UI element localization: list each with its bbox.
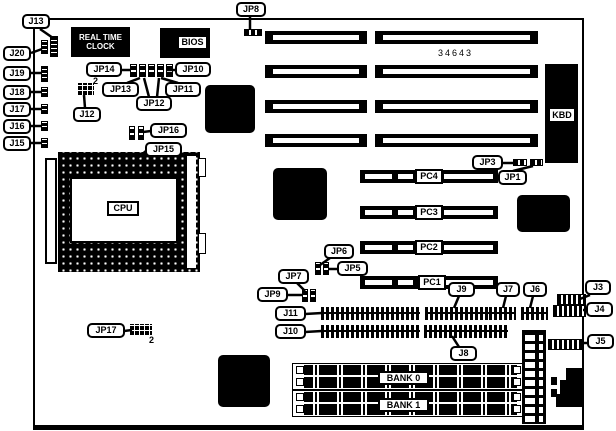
pc3-label: PC3	[415, 205, 443, 220]
jp15-label: JP15	[145, 142, 182, 157]
part-number: 34643	[438, 48, 473, 58]
j3-label: J3	[585, 280, 611, 295]
j20-label: J20	[3, 46, 31, 61]
cpu-socket-tab-top	[198, 158, 206, 177]
j11-label: J11	[275, 306, 306, 321]
pc2-label: PC2	[415, 240, 443, 255]
j15-label: J15	[3, 136, 31, 151]
jp12-label: JP12	[136, 96, 172, 111]
kbd-label: KBD	[549, 108, 575, 122]
cpu-zif-lever	[45, 158, 57, 264]
jp17-pin2-marker: 2	[149, 335, 154, 345]
j19-label: J19	[3, 66, 31, 81]
jp10-label: JP10	[175, 62, 211, 77]
jp8-label: JP8	[236, 2, 266, 17]
jp6-label: JP6	[324, 244, 354, 259]
j7-label: J7	[496, 282, 520, 297]
cpu-socket-tab-bottom	[198, 233, 206, 254]
j16-label: J16	[3, 119, 31, 134]
pc4-label: PC4	[415, 169, 443, 184]
j8-label: J8	[450, 346, 477, 361]
j4-label: J4	[586, 302, 613, 317]
bios-label: BIOS	[177, 35, 208, 50]
jp3-label: JP3	[472, 155, 503, 170]
j9-label: J9	[448, 282, 475, 297]
jp11-label: JP11	[165, 82, 201, 97]
jp7-label: JP7	[278, 269, 309, 284]
jp16-label: JP16	[150, 123, 187, 138]
jp17-label: JP17	[87, 323, 125, 338]
j12-pin2-marker: 2	[93, 76, 98, 86]
cpu-label: CPU	[107, 201, 139, 216]
motherboard-diagram: REAL TIME CLOCK BIOS 34643 KBD 2 CPU	[0, 0, 616, 431]
j5-label: J5	[587, 334, 614, 349]
jp5-label: JP5	[337, 261, 368, 276]
j10-label: J10	[275, 324, 306, 339]
pc1-label: PC1	[418, 275, 446, 290]
jp9-label: JP9	[257, 287, 288, 302]
jp14-label: JP14	[86, 62, 122, 77]
j6-label: J6	[523, 282, 547, 297]
j13-label: J13	[22, 14, 50, 29]
j18-label: J18	[3, 85, 31, 100]
bank1-label: BANK 1	[378, 398, 429, 412]
j12-label: J12	[73, 107, 101, 122]
j17-label: J17	[3, 102, 31, 117]
jp1-label: JP1	[498, 170, 527, 185]
bank0-label: BANK 0	[378, 371, 429, 385]
jp13-label: JP13	[102, 82, 139, 97]
